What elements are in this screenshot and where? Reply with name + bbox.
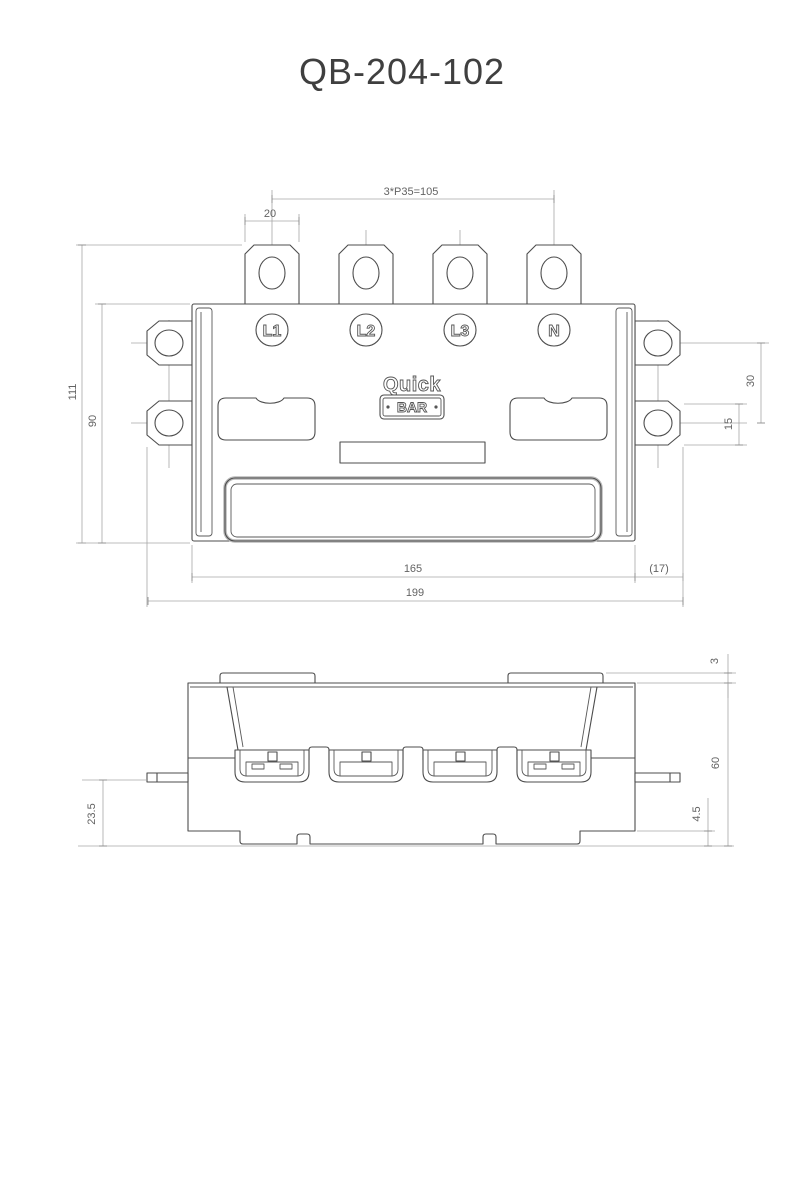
housing-body bbox=[192, 304, 635, 541]
terminal-lug-4 bbox=[527, 245, 581, 304]
brand-name-top: Quick bbox=[383, 374, 441, 396]
dim-lug-width-label: 20 bbox=[264, 208, 276, 220]
pin-left bbox=[147, 773, 188, 782]
dim-base-step: 4.5 bbox=[637, 798, 715, 846]
badge-dot-right bbox=[434, 405, 437, 408]
pin-right bbox=[635, 773, 680, 782]
dim-body-width-label: 165 bbox=[404, 563, 422, 575]
mount-tab-right-upper bbox=[635, 321, 680, 365]
pocket-key bbox=[362, 752, 371, 761]
dim-mount-hole-offset: 15 bbox=[684, 404, 747, 445]
dim-total-height-label: 111 bbox=[67, 384, 79, 401]
dim-pin-height-label: 23.5 bbox=[86, 803, 98, 824]
dim-body-height-label: 90 bbox=[87, 415, 99, 427]
mount-tab-left-lower bbox=[147, 401, 192, 445]
terminal-label-n: N bbox=[548, 323, 560, 340]
terminal-label-l3: L3 bbox=[451, 323, 470, 340]
connector-pocket-4 bbox=[517, 750, 591, 782]
mount-tab-left-upper bbox=[147, 321, 192, 365]
side-view: 3 60 4.5 23.5 bbox=[78, 654, 736, 846]
dim-pitch: 3*P35=105 bbox=[272, 186, 554, 203]
terminal-lug-2 bbox=[339, 245, 393, 304]
dim-base-step-label: 4.5 bbox=[691, 806, 703, 821]
dim-side-height-label: 60 bbox=[710, 757, 722, 769]
dim-mount-hole-offset-label: 15 bbox=[723, 418, 735, 430]
page-title: QB-204-102 bbox=[299, 51, 505, 92]
badge-dot-left bbox=[386, 405, 389, 408]
connector-pocket-1 bbox=[235, 750, 309, 782]
dim-side-height: 60 bbox=[710, 683, 732, 846]
terminal-lug-1 bbox=[245, 245, 299, 304]
mount-tab-right-lower bbox=[635, 401, 680, 445]
drawing-sheet: QB-204-102 bbox=[0, 0, 800, 1200]
pocket-bridge bbox=[403, 747, 423, 760]
dim-total-width-label: 199 bbox=[406, 587, 424, 599]
dim-flange-ext-label: (17) bbox=[649, 563, 669, 575]
connector-pocket-2 bbox=[329, 750, 403, 782]
dim-pitch-label: 3*P35=105 bbox=[384, 186, 439, 198]
technical-drawing-svg: QB-204-102 bbox=[0, 0, 800, 1200]
dim-body-width: 165 bbox=[192, 545, 635, 583]
top-view: L1 L2 L3 N Quick BAR bbox=[67, 186, 769, 607]
lug-centerlines bbox=[252, 190, 574, 302]
pocket-key bbox=[268, 752, 277, 761]
lid-tab-right bbox=[508, 673, 603, 683]
dim-pin-height: 23.5 bbox=[82, 780, 146, 846]
brand-name-bottom: BAR bbox=[397, 399, 427, 415]
pocket-key bbox=[456, 752, 465, 761]
dim-mount-hole-spacing-label: 30 bbox=[745, 375, 757, 387]
terminal-label-l1: L1 bbox=[263, 323, 282, 340]
pocket-key bbox=[550, 752, 559, 761]
connector-pocket-3 bbox=[423, 750, 497, 782]
dim-flange-ext: (17) bbox=[635, 563, 683, 581]
terminal-label-l2: L2 bbox=[357, 323, 376, 340]
dim-mount-hole-spacing: 30 bbox=[745, 343, 765, 423]
pocket-bridge bbox=[497, 747, 517, 760]
pocket-bridge bbox=[309, 747, 329, 760]
dim-cover-lip-label: 3 bbox=[709, 658, 721, 664]
lid-tab-left bbox=[220, 673, 315, 683]
terminal-lug-3 bbox=[433, 245, 487, 304]
